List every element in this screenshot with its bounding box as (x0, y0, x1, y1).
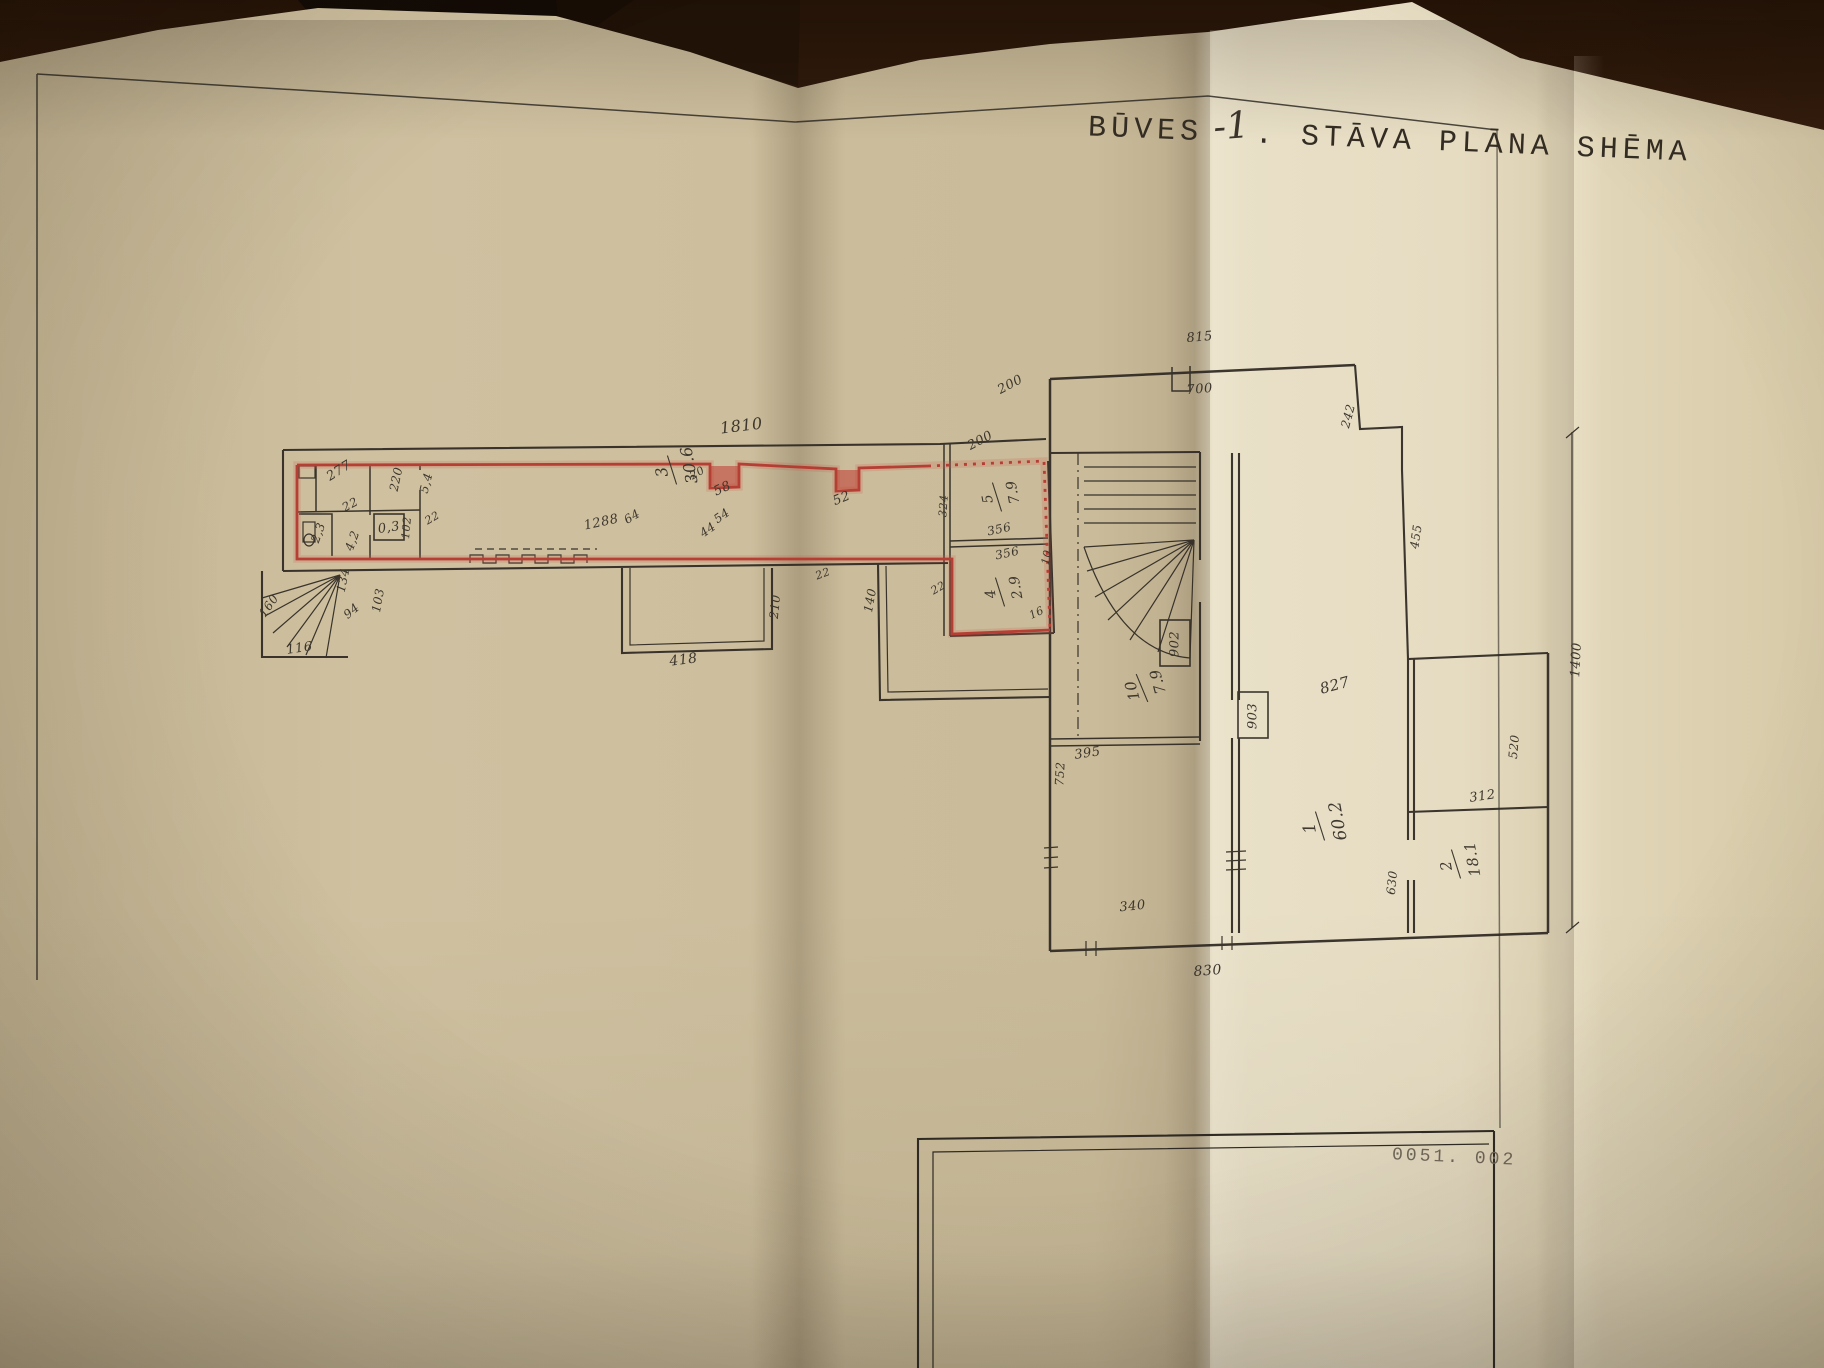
dimension-label: 520 (1506, 734, 1522, 760)
dimension-label: 700 (1186, 381, 1214, 398)
dimension-label: 1400 (1568, 642, 1585, 678)
dimension-label: 830 (1193, 962, 1222, 980)
dimension-label: 102 (399, 516, 414, 540)
svg-text:0,3: 0,3 (377, 519, 401, 537)
title-floor-number: -1 (1212, 103, 1251, 149)
dimension-label: 630 (1384, 870, 1400, 896)
dimension-label: 324 (936, 494, 951, 517)
dimension-label: 340 (1119, 898, 1147, 916)
title-prefix: BŪVES (1087, 111, 1203, 150)
svg-text:903: 903 (1246, 703, 1261, 729)
photo-of-floor-plan: 18102772205,4222,34,21022212886420585444… (0, 0, 1824, 1368)
dimension-label: 815 (1186, 329, 1214, 346)
dimension-label: 210 (767, 594, 784, 621)
paper-bottom-shade (0, 900, 1824, 1368)
svg-text:902: 902 (1168, 631, 1183, 657)
floor-plan-drawing: 18102772205,4222,34,21022212886420585444… (0, 0, 1824, 1368)
dimension-label: 752 (1052, 761, 1067, 786)
